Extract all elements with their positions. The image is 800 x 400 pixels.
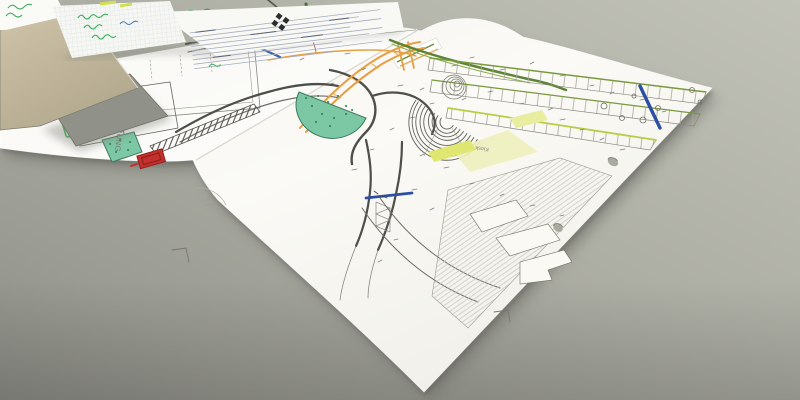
photo-canvas: AUSFÜHRUNG Kiosk	[0, 0, 800, 400]
photo-of-site-plan-on-desk: AUSFÜHRUNG Kiosk	[0, 0, 800, 400]
